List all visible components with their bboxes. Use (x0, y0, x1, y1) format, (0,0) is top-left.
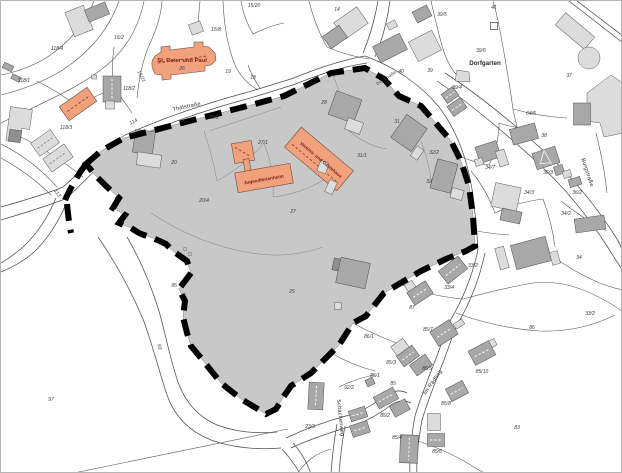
parcel-label: 37 (566, 73, 572, 79)
parcel-label: 20 (170, 160, 177, 166)
parcel-label: 20/2 (208, 115, 219, 121)
parcel-label: 39/4 (452, 85, 462, 91)
cadastral-map: ThalstraßeDorfstraßeBurgstraßeIm Rädling… (0, 0, 622, 473)
building-dark (574, 103, 591, 125)
parcel-label: 39/6 (476, 48, 486, 54)
parcel-label: 31/1 (357, 153, 367, 159)
building-light (335, 303, 342, 310)
parcel-label: 118/1 (18, 78, 30, 84)
building-light (188, 21, 203, 35)
building-dark (574, 215, 606, 233)
building-light (491, 183, 521, 212)
parcel-label: 85/1 (370, 373, 380, 379)
building-dark (412, 5, 432, 23)
parcel-label: 27/1 (257, 140, 268, 146)
building-dark (500, 208, 522, 224)
parcel-label: 95 (171, 283, 177, 289)
building-light (453, 319, 465, 329)
parcel-label: 85/3 (386, 360, 396, 366)
parcel-label: 114 (129, 118, 139, 127)
building-light (495, 149, 509, 167)
building-light (549, 251, 560, 266)
parcel-label: 33/2 (468, 263, 478, 269)
parcel-label: 14 (334, 7, 340, 13)
parcel-label: 118/2 (123, 86, 135, 92)
parcel-label: 64/5 (526, 111, 536, 117)
parcel-label: 19 (225, 69, 231, 75)
parcel-label: 85/6 (432, 449, 442, 455)
parcel-label: 85/4 (392, 435, 402, 441)
parcel-label: 23/3 (304, 424, 315, 430)
parcel-label: 34/3 (524, 190, 534, 196)
building-light (555, 13, 594, 50)
parcel-label: 92/2 (344, 385, 354, 391)
parcel-label: 83 (514, 425, 520, 431)
parcel-label: 41 (491, 5, 497, 11)
parcel-label: 33/2 (585, 311, 595, 317)
parcel-label: 85/7 (423, 327, 433, 333)
parcel-label: 113 (52, 188, 62, 198)
parcel-label: 33/4 (444, 285, 454, 291)
parcel-label: 34/7 (485, 165, 495, 171)
parcel-label: 28 (320, 100, 327, 106)
parcel-label: 25 (288, 289, 295, 295)
parcel-label: 36/3 (543, 170, 553, 176)
building-light (408, 30, 441, 61)
building-dark (510, 236, 551, 269)
street-label: Thalstraße (172, 101, 201, 113)
parcel-label: 15/21 (135, 70, 146, 84)
parcel-label: 39/5 (437, 12, 447, 18)
parcel-label: 86 (529, 325, 535, 331)
parcel-label: 18 (250, 75, 256, 81)
building-light (106, 101, 115, 109)
building-light (92, 75, 97, 79)
building-dark (84, 2, 109, 22)
parcel-label: 15/20 (248, 3, 261, 9)
parcel-label: 34 (576, 255, 582, 261)
parcel-label: 20/4 (198, 198, 209, 204)
parcel-label: 32 (426, 179, 432, 185)
place-label: Dorfgarten (469, 60, 501, 67)
parcel-label: 38 (541, 133, 547, 139)
parcel-label: 85/8 (441, 401, 451, 407)
parcel-label: 118/4 (51, 46, 63, 52)
building-dark (445, 380, 468, 401)
parcel-label: 40 (398, 69, 404, 75)
building-dark (373, 33, 408, 63)
parcel-label: 97 (48, 397, 54, 403)
building-light (455, 70, 470, 82)
building-dark (509, 123, 538, 145)
building-dark (2, 62, 14, 72)
poi-label: St. Peter und Paul (157, 58, 207, 64)
parcel-label: 15/8 (211, 27, 221, 33)
building-dark (8, 129, 22, 143)
parcel-label: 118/3 (60, 125, 72, 131)
parcel-label: 85 (390, 381, 396, 387)
parcel-label: 26 (178, 66, 185, 72)
parcel-label: 31 (394, 119, 400, 125)
parcel-label: 85/5 (422, 366, 432, 372)
parcel-label: 32/2 (429, 150, 439, 156)
parcel-label: 36/2 (572, 190, 582, 196)
parcel-label: 34/2 (561, 211, 571, 217)
street-label: Im Rädling (422, 369, 443, 396)
building-light (386, 20, 397, 30)
parcel-label: 27 (289, 209, 296, 215)
parcel-label: 87 (409, 305, 415, 311)
chapel-symbol-icon (491, 23, 498, 30)
building-light (578, 47, 600, 69)
parcel-label: 85/2 (380, 413, 390, 419)
building-light (428, 414, 441, 431)
building-light (587, 75, 622, 137)
parcel-label: 86/1 (364, 334, 374, 340)
building-light (474, 157, 484, 166)
building-orange (65, 164, 86, 233)
building-dark (568, 176, 582, 187)
parcel-label: 85/10 (476, 369, 489, 375)
parcel-label: 39 (427, 68, 433, 74)
parcel-label: 93 (156, 344, 163, 351)
parcel-label: 16/2 (114, 35, 124, 41)
map-canvas: ThalstraßeDorfstraßeBurgstraßeIm Rädling… (1, 1, 622, 473)
building-light (495, 246, 509, 270)
